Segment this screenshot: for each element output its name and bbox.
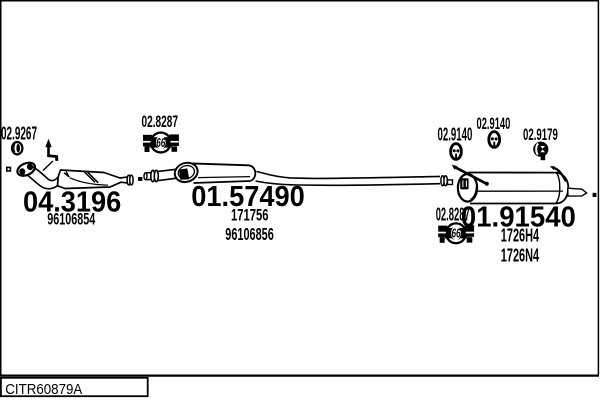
svg-text:02.9179: 02.9179 <box>523 125 558 144</box>
svg-text:1726H4: 1726H4 <box>501 226 539 246</box>
svg-text:171756: 171756 <box>231 206 269 225</box>
svg-text:02.9267: 02.9267 <box>1 124 37 144</box>
svg-text:CITR60879A: CITR60879A <box>5 381 82 398</box>
svg-text:02.9140: 02.9140 <box>477 115 511 133</box>
svg-text:1726N4: 1726N4 <box>501 245 539 265</box>
svg-text:02.9140: 02.9140 <box>438 125 473 145</box>
svg-text:96106854: 96106854 <box>47 209 95 228</box>
svg-text:02.8287: 02.8287 <box>142 112 179 131</box>
svg-text:66: 66 <box>156 136 166 150</box>
svg-text:96106856: 96106856 <box>225 224 274 244</box>
